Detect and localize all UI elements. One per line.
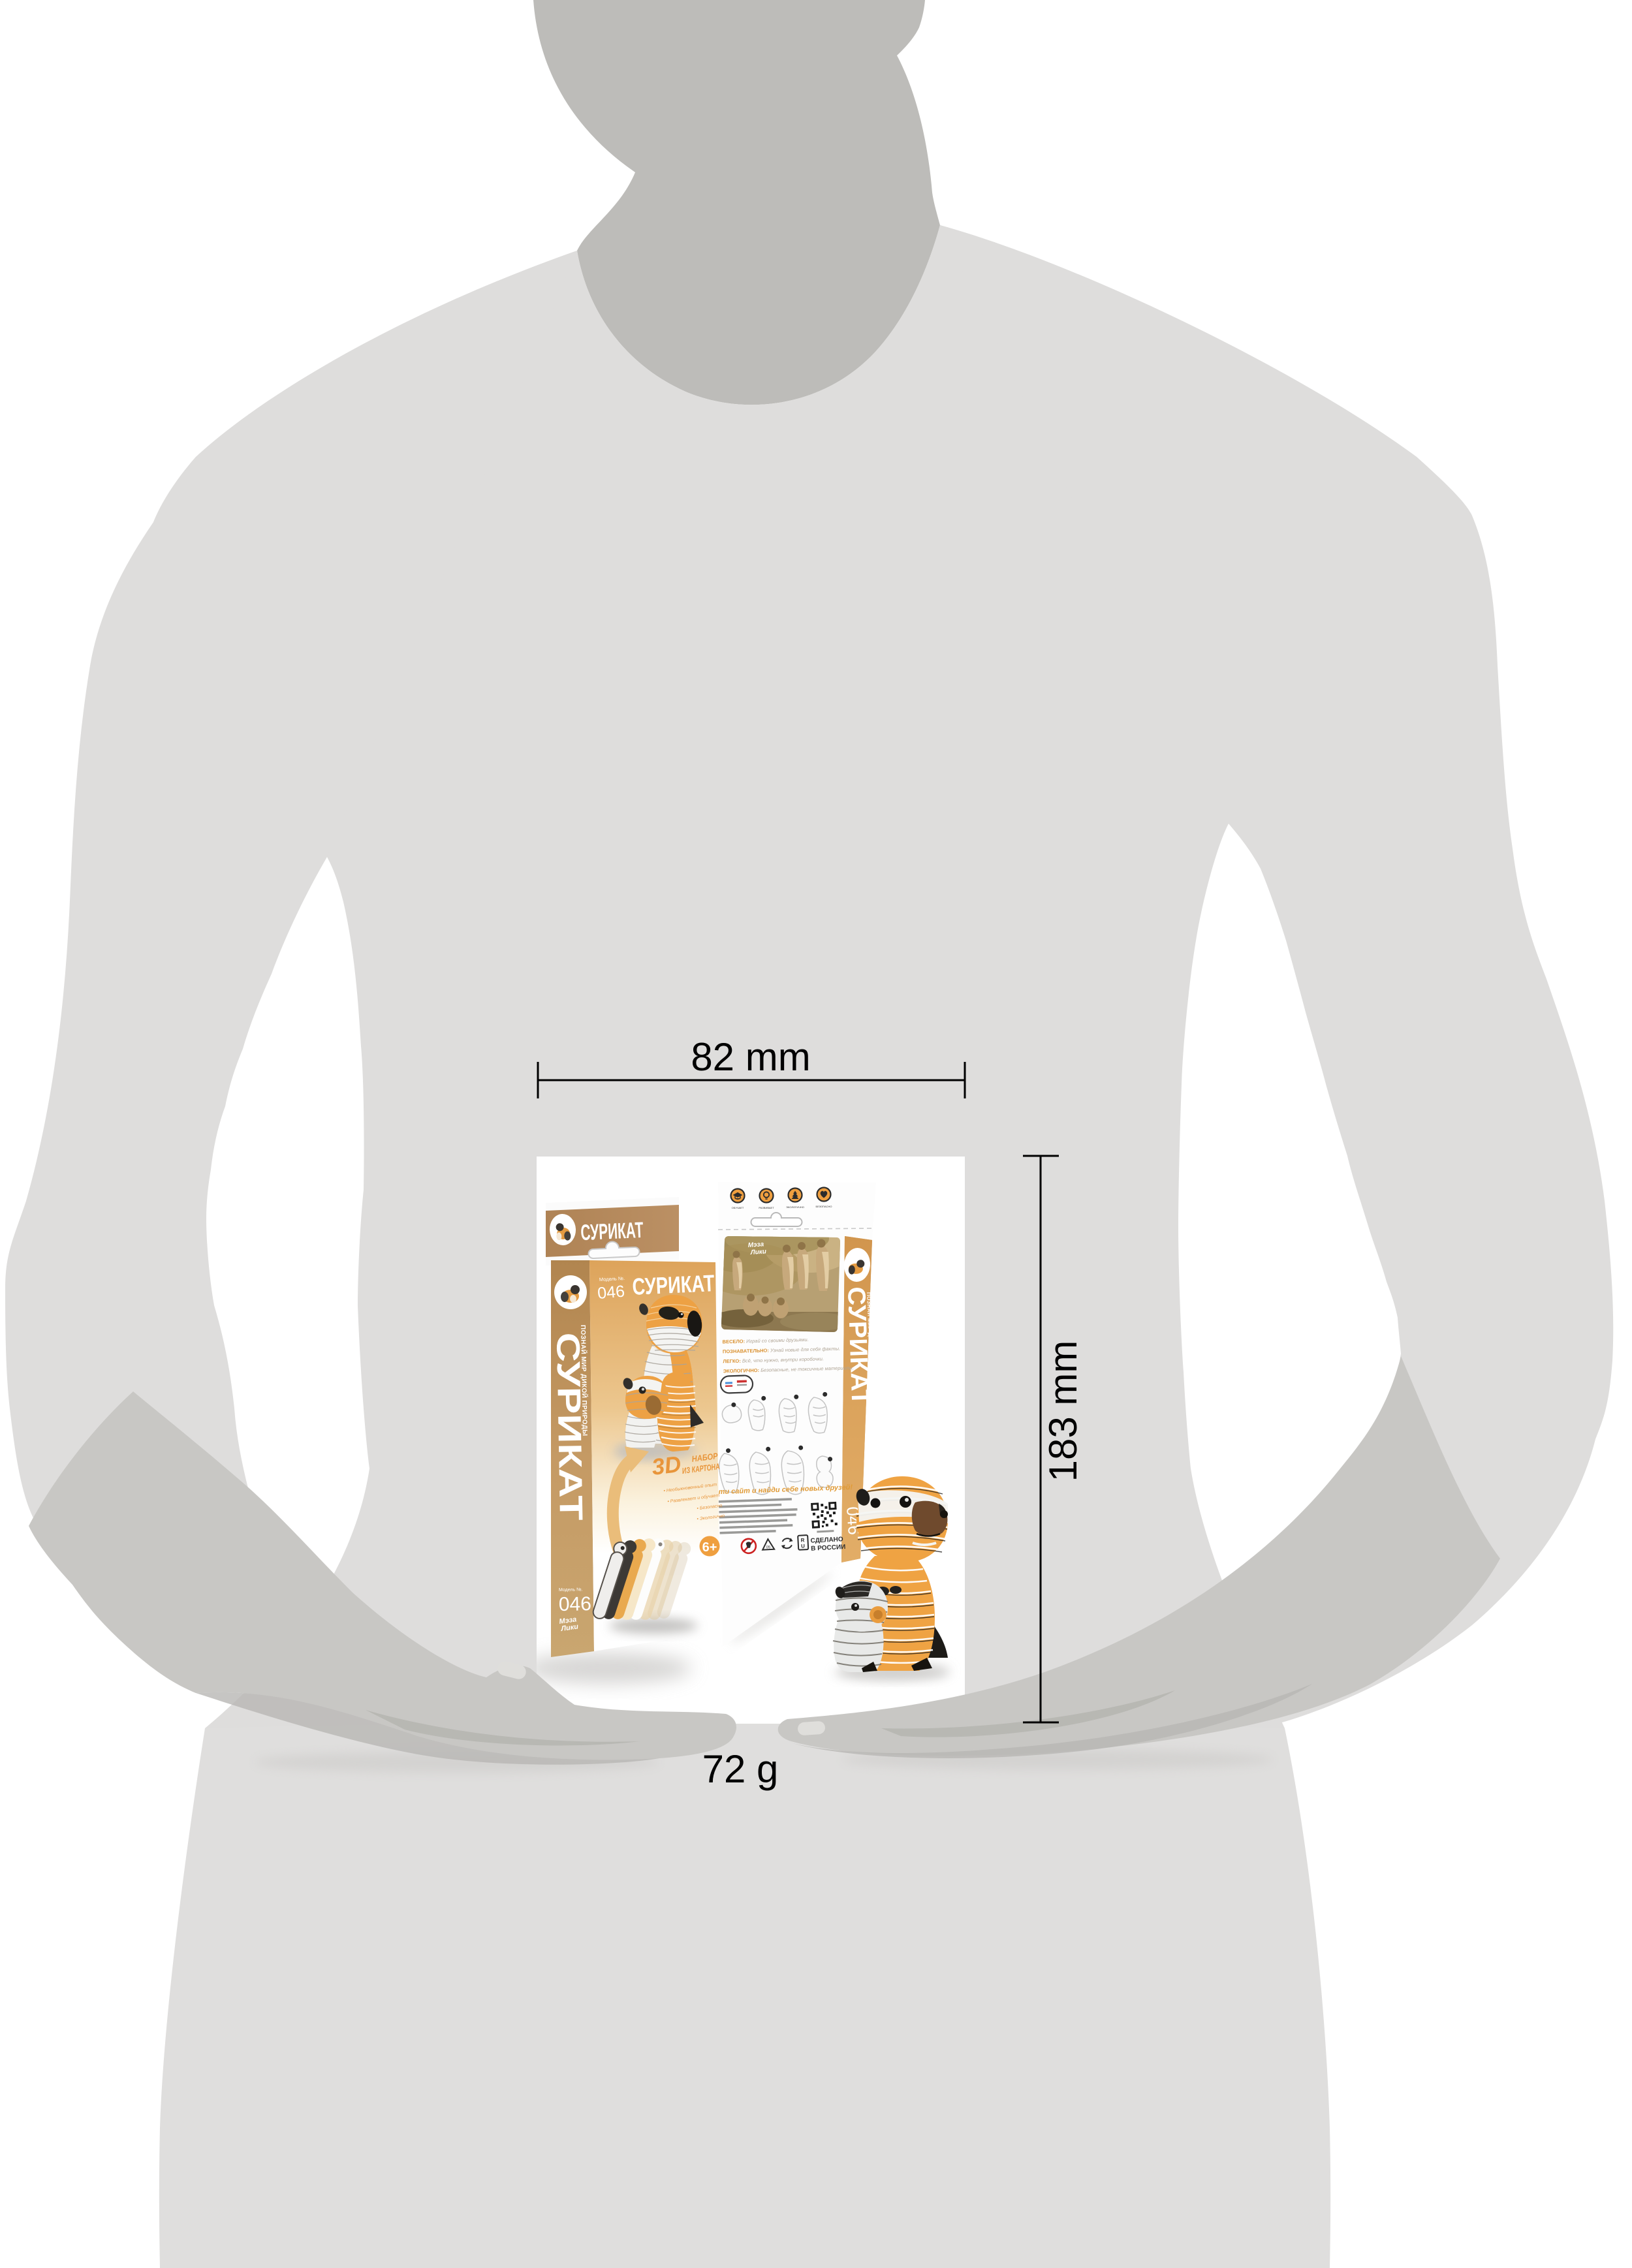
svg-text:046: 046 — [597, 1282, 625, 1303]
svg-text:Модель №.: Модель №. — [559, 1587, 583, 1592]
svg-text:СУРИКАТ: СУРИКАТ — [842, 1286, 873, 1406]
svg-text:ЭКОЛОГИЧНО: ЭКОЛОГИЧНО — [786, 1205, 804, 1209]
svg-text:3D: 3D — [650, 1452, 682, 1480]
svg-text:05: 05 — [766, 1546, 772, 1549]
svg-text:БЕЗОПАСНО: БЕЗОПАСНО — [815, 1205, 832, 1208]
svg-text:R: R — [800, 1537, 804, 1543]
svg-text:82 mm: 82 mm — [691, 1035, 810, 1079]
svg-text:6+: 6+ — [702, 1540, 717, 1555]
svg-text:046: 046 — [559, 1593, 592, 1615]
svg-text:Лики: Лики — [749, 1248, 766, 1256]
svg-text:72 g: 72 g — [702, 1747, 779, 1791]
svg-text:РАЗВИВАЕТ: РАЗВИВАЕТ — [759, 1206, 774, 1209]
svg-text:СУРИКАТ: СУРИКАТ — [550, 1332, 589, 1521]
svg-text:U: U — [801, 1543, 805, 1549]
svg-text:183 mm: 183 mm — [1041, 1341, 1085, 1482]
svg-text:ОБУЧАЕТ: ОБУЧАЕТ — [732, 1206, 744, 1209]
